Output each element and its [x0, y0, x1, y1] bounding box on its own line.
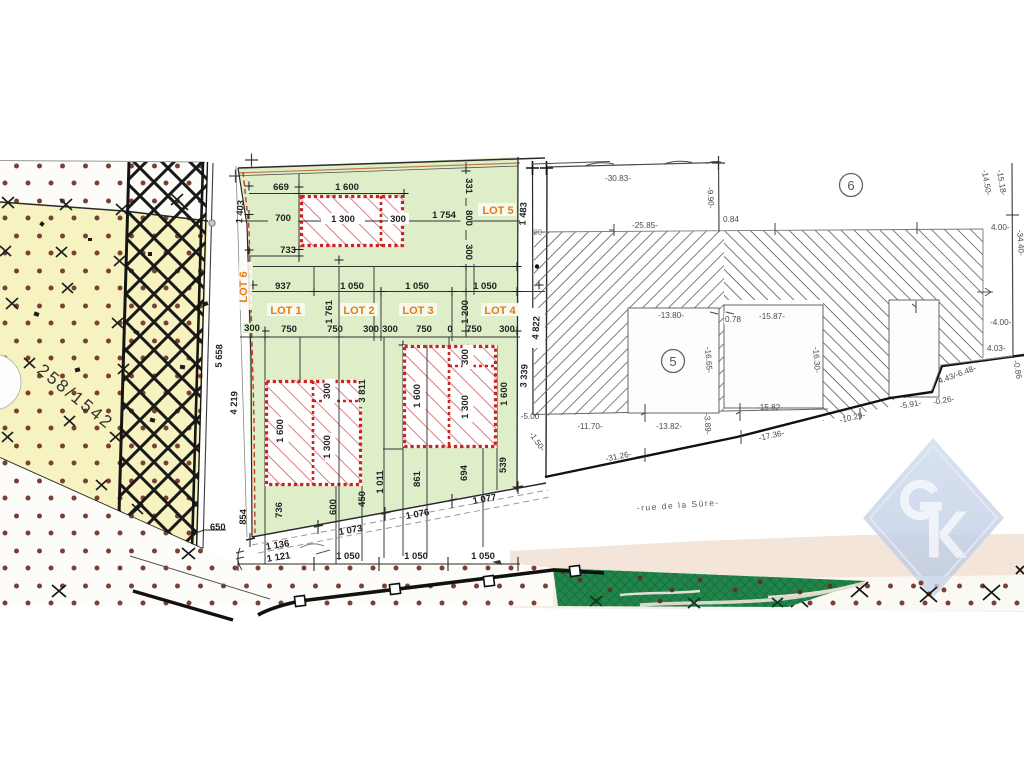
svg-text:300: 300 — [244, 323, 260, 334]
svg-text:331: 331 — [463, 178, 474, 195]
svg-text:300: 300 — [363, 324, 379, 335]
svg-text:-15.87-: -15.87- — [759, 312, 785, 321]
svg-text:750: 750 — [327, 324, 343, 335]
svg-text:-3.89-: -3.89- — [702, 413, 712, 435]
svg-text:937: 937 — [275, 281, 291, 292]
svg-text:1 600: 1 600 — [499, 382, 510, 406]
svg-text:5 658: 5 658 — [214, 344, 225, 368]
svg-text:5: 5 — [669, 354, 676, 369]
svg-text:-25.85-: -25.85- — [632, 221, 658, 230]
svg-text:4.03-: 4.03- — [987, 344, 1006, 353]
svg-text:-15.82-: -15.82- — [757, 403, 783, 412]
svg-text:1 011: 1 011 — [375, 470, 386, 494]
svg-text:854: 854 — [238, 508, 249, 525]
svg-text:1 300: 1 300 — [460, 395, 471, 419]
svg-text:1 050: 1 050 — [336, 551, 360, 562]
svg-text:1 050: 1 050 — [473, 281, 497, 292]
svg-text:LOT 4: LOT 4 — [484, 305, 516, 317]
svg-text:0.78: 0.78 — [725, 315, 741, 324]
svg-text:1 050: 1 050 — [404, 551, 428, 562]
svg-text:-30.83-: -30.83- — [605, 174, 631, 183]
svg-text:LOT 1: LOT 1 — [270, 305, 301, 317]
svg-text:-11.70-: -11.70- — [577, 422, 603, 431]
svg-text:-16.65-: -16.65- — [703, 347, 714, 374]
svg-text:1 050: 1 050 — [340, 281, 364, 292]
svg-text:1 600: 1 600 — [412, 384, 423, 408]
svg-text:-5.00: -5.00 — [521, 412, 540, 421]
svg-text:300: 300 — [463, 244, 474, 260]
svg-text:300: 300 — [460, 349, 471, 365]
svg-text:300: 300 — [499, 324, 515, 335]
svg-text:LOT 2: LOT 2 — [343, 305, 374, 317]
svg-text:LOT 3: LOT 3 — [402, 305, 433, 317]
svg-text:450: 450 — [357, 491, 368, 507]
svg-text:6: 6 — [847, 178, 854, 193]
svg-text:694: 694 — [459, 464, 470, 481]
svg-text:LOT 6: LOT 6 — [238, 271, 250, 302]
svg-text:750: 750 — [466, 324, 482, 335]
svg-text:1 200: 1 200 — [460, 300, 471, 324]
svg-text:800: 800 — [463, 210, 474, 226]
svg-text:736: 736 — [274, 502, 285, 518]
svg-text:750: 750 — [281, 324, 297, 335]
svg-text:300: 300 — [390, 214, 406, 225]
svg-text:-4.00-: -4.00- — [990, 318, 1012, 327]
svg-text:LOT 5: LOT 5 — [482, 205, 513, 217]
svg-text:-9.90-: -9.90- — [705, 187, 715, 209]
svg-text:300: 300 — [382, 324, 398, 335]
svg-text:4.00-: 4.00- — [991, 223, 1010, 232]
svg-text:3 339: 3 339 — [518, 364, 529, 388]
svg-text:669: 669 — [273, 182, 289, 193]
svg-text:4 219: 4 219 — [229, 391, 240, 415]
svg-text:1 483: 1 483 — [517, 202, 528, 226]
svg-text:1 754: 1 754 — [432, 210, 456, 221]
svg-text:1 300: 1 300 — [331, 214, 355, 225]
svg-text:3 811: 3 811 — [357, 379, 368, 403]
svg-text:539: 539 — [498, 457, 509, 473]
svg-text:1 050: 1 050 — [405, 281, 429, 292]
svg-text:750: 750 — [416, 324, 432, 335]
svg-text:-13.82-: -13.82- — [656, 422, 682, 431]
svg-text:1 761: 1 761 — [324, 299, 335, 323]
svg-text:-13.80-: -13.80- — [658, 311, 684, 320]
svg-text:0: 0 — [447, 324, 452, 335]
svg-text:733: 733 — [280, 245, 296, 256]
svg-text:1 050: 1 050 — [471, 551, 495, 562]
svg-text:-16.30-: -16.30- — [811, 347, 822, 374]
svg-text:600: 600 — [328, 499, 339, 515]
svg-text:1 300: 1 300 — [322, 435, 333, 459]
svg-text:0.84: 0.84 — [723, 215, 739, 224]
svg-text:700: 700 — [275, 213, 291, 224]
svg-text:861: 861 — [412, 470, 423, 487]
svg-text:1 600: 1 600 — [275, 419, 286, 443]
svg-text:4 822: 4 822 — [530, 316, 541, 340]
svg-text:300: 300 — [322, 383, 333, 399]
svg-text:1 600: 1 600 — [335, 182, 359, 193]
